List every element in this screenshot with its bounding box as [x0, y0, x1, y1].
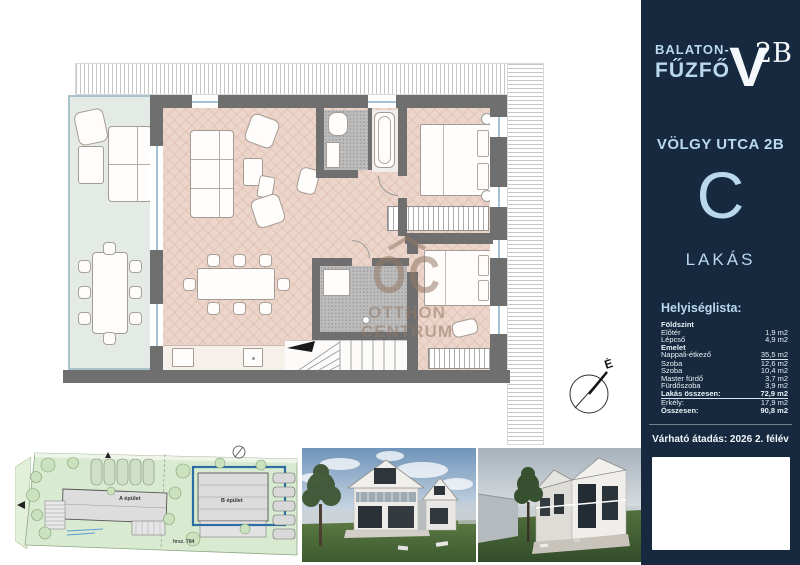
bathtub	[374, 112, 395, 168]
chair	[277, 278, 290, 291]
wall-segment	[396, 95, 493, 108]
chair	[129, 312, 142, 325]
unit-type-label: LAKÁS	[641, 250, 800, 270]
location-line2: FŰZFŐ	[655, 59, 730, 83]
dining-table	[197, 268, 275, 300]
chair	[129, 286, 142, 299]
delivery-date: Várható átadás: 2026 2. félév	[641, 434, 800, 445]
chair	[78, 312, 91, 325]
info-sidebar: BALATON- FŰZFŐ V 2B VÖLGY UTCA 2B C LAKÁ…	[641, 0, 800, 565]
wall-segment	[490, 95, 507, 117]
sliding-door	[150, 304, 163, 346]
divider	[649, 424, 792, 425]
chair	[103, 332, 116, 345]
wall-segment	[312, 258, 320, 340]
chair	[259, 302, 272, 315]
chair	[78, 286, 91, 299]
wall-segment	[407, 244, 418, 254]
chair	[207, 254, 220, 267]
street-address: VÖLGY UTCA 2B	[641, 136, 800, 153]
wall-segment	[63, 370, 510, 383]
bed	[424, 250, 492, 306]
exterior-render-2	[478, 448, 641, 562]
window	[192, 95, 218, 108]
drain	[362, 316, 370, 324]
wall-segment	[372, 258, 409, 266]
wall-segment	[398, 198, 407, 236]
building-a-label: A épület	[119, 496, 141, 502]
v2b-logo: V 2B	[730, 40, 792, 98]
blank-panel	[652, 457, 790, 550]
wall-segment	[490, 137, 507, 187]
wall-segment	[150, 346, 163, 370]
balcony-sofa	[108, 126, 152, 202]
balcony-side-table	[78, 146, 104, 184]
wall-segment	[490, 258, 507, 306]
location-title: BALATON- FŰZFŐ	[655, 42, 730, 83]
compass-label: É	[602, 358, 614, 372]
chair	[129, 260, 142, 273]
wall-segment	[316, 170, 358, 178]
wall-segment	[150, 95, 192, 108]
exterior-render-1	[302, 448, 476, 562]
stove	[172, 348, 194, 367]
floor-plan: OC OTTHON CENTRUM É	[0, 0, 641, 450]
window	[490, 187, 507, 207]
window	[490, 117, 507, 137]
shower	[323, 269, 350, 296]
chair	[207, 302, 220, 315]
room-row-grand-total: Összesen:90,8 m2	[661, 407, 788, 415]
wall-segment	[218, 95, 368, 108]
wall-segment	[312, 332, 409, 340]
toilet	[328, 112, 348, 136]
north-compass-icon: É	[563, 358, 621, 420]
room-list: Földszint Előtér1,9 m2 Lépcső4,9 m2 Emel…	[661, 321, 788, 414]
property-flyer: OC OTTHON CENTRUM É	[0, 0, 800, 565]
wall-segment	[407, 272, 418, 370]
chair	[78, 260, 91, 273]
balcony-dining-table	[92, 252, 128, 334]
chair	[183, 278, 196, 291]
chair	[259, 254, 272, 267]
washbasin	[326, 142, 340, 168]
building-b-label: B épület	[221, 498, 243, 504]
roof-hatch-top	[75, 63, 508, 95]
sofa	[190, 130, 234, 218]
parcel-label: hrsz. 784	[173, 539, 195, 545]
chair	[103, 242, 116, 255]
unit-letter: C	[641, 158, 800, 232]
wall-segment	[150, 250, 163, 304]
sliding-door	[150, 146, 163, 250]
chair	[233, 254, 246, 267]
wall-segment	[150, 108, 163, 146]
chair	[233, 302, 246, 315]
wall-segment	[405, 233, 493, 244]
bed	[420, 124, 492, 196]
window	[368, 95, 396, 108]
site-plan: A épület B épület hrsz. 784	[15, 443, 300, 562]
location-line1: BALATON-	[655, 42, 730, 57]
room-list-title: Helyiséglista:	[661, 301, 742, 315]
roof-hatch-right	[507, 63, 544, 445]
wall-segment	[316, 108, 324, 170]
window	[490, 306, 507, 334]
sink	[243, 348, 263, 367]
staircase	[285, 340, 407, 370]
wall-segment	[398, 108, 407, 176]
wall-segment	[368, 108, 372, 170]
wardrobe	[428, 348, 492, 369]
logo-2b-glyph: 2B	[755, 38, 792, 69]
